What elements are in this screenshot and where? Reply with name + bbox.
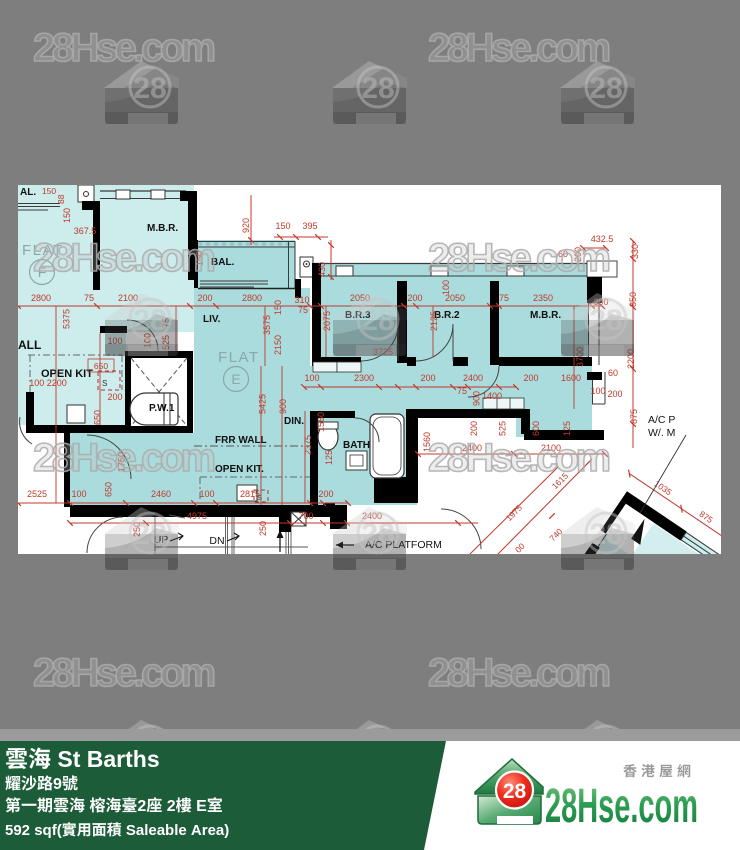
svg-text:St Barths: St Barths: [51, 746, 160, 772]
svg-text:2: 2: [137, 798, 146, 815]
svg-text:2: 2: [162, 798, 175, 815]
svg-text:E: E: [192, 798, 207, 815]
svg-text:28Hse.com: 28Hse.com: [545, 780, 698, 833]
svg-text:9: 9: [53, 776, 62, 793]
svg-text:592 sqf(: 592 sqf(: [5, 822, 62, 839]
svg-text:Saleable Area): Saleable Area): [122, 822, 230, 839]
svg-text:28: 28: [503, 780, 527, 803]
